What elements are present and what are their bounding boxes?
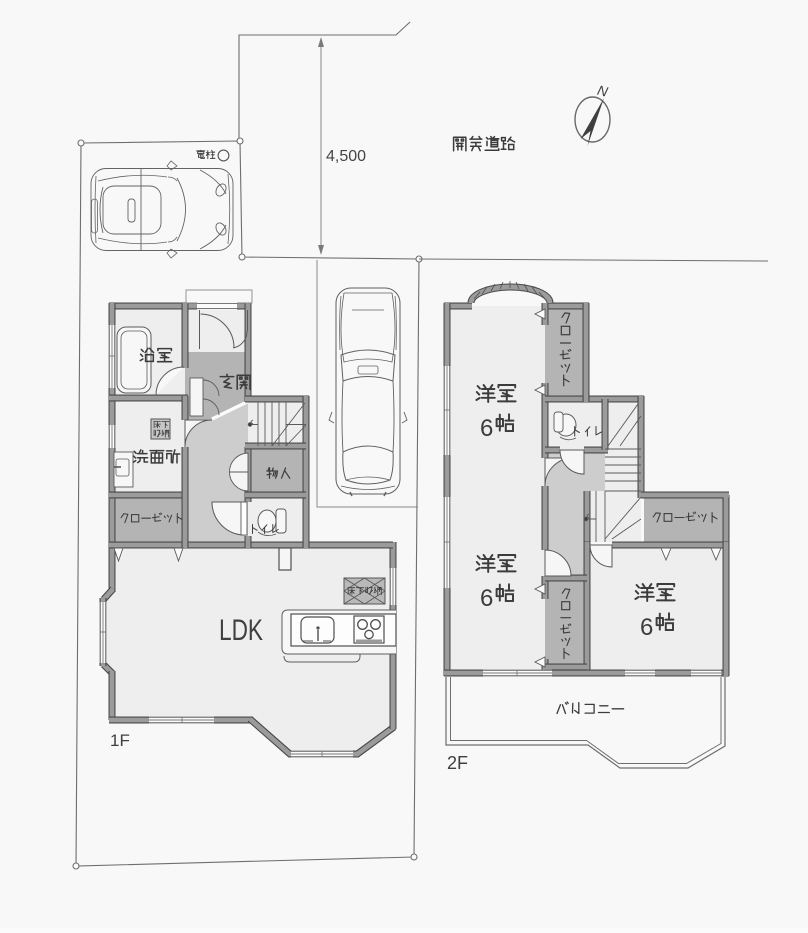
svg-text:LDK: LDK [219,614,263,647]
svg-text:6: 6 [480,415,493,442]
svg-text:4,500: 4,500 [326,148,366,165]
svg-text:1F: 1F [110,731,130,750]
svg-text:2F: 2F [447,753,468,773]
svg-text:6: 6 [640,614,653,641]
svg-text:6: 6 [480,585,493,612]
